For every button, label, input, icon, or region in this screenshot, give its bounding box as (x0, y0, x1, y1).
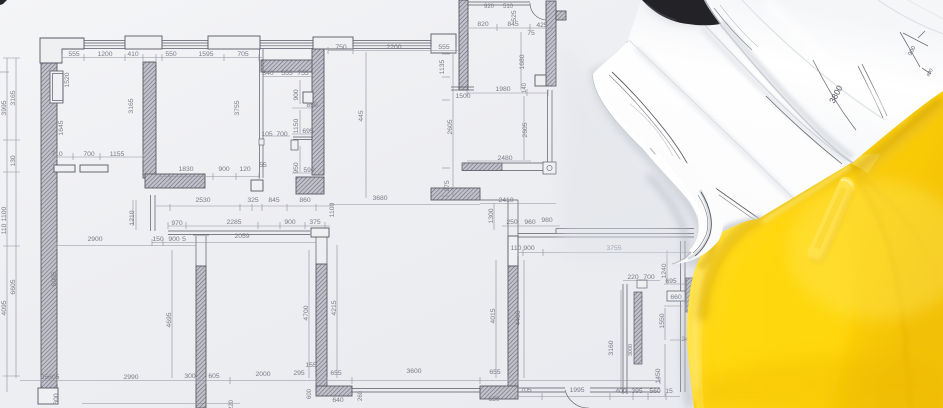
svg-text:700: 700 (83, 151, 95, 158)
svg-text:555: 555 (68, 51, 80, 58)
svg-text:1450: 1450 (655, 368, 662, 383)
svg-text:6005: 6005 (51, 271, 58, 286)
svg-text:900: 900 (218, 166, 230, 173)
svg-text:15: 15 (665, 388, 673, 395)
svg-text:3995: 3995 (1, 100, 8, 115)
svg-text:820: 820 (477, 21, 489, 28)
svg-text:560: 560 (649, 388, 661, 395)
svg-text:4695: 4695 (166, 312, 173, 327)
svg-text:425: 425 (536, 22, 548, 29)
svg-text:6605: 6605 (10, 279, 17, 294)
svg-text:900: 900 (293, 89, 300, 101)
svg-text:75: 75 (527, 30, 535, 37)
svg-text:375: 375 (309, 219, 321, 226)
svg-text:1155: 1155 (110, 151, 125, 158)
svg-text:1520: 1520 (64, 72, 71, 87)
svg-text:5: 5 (182, 236, 186, 243)
svg-text:250: 250 (506, 219, 518, 226)
svg-text:220: 220 (627, 274, 639, 281)
svg-text:640: 640 (332, 397, 344, 404)
svg-text:3165: 3165 (128, 98, 135, 113)
svg-text:900: 900 (523, 245, 535, 252)
svg-text:2990: 2990 (123, 374, 138, 381)
svg-text:1300: 1300 (488, 208, 495, 223)
svg-text:860: 860 (299, 197, 311, 204)
svg-text:2059: 2059 (234, 233, 249, 240)
svg-text:4400: 4400 (515, 310, 522, 325)
svg-text:120: 120 (239, 166, 251, 173)
svg-text:705: 705 (237, 51, 249, 58)
svg-text:1645: 1645 (58, 120, 65, 135)
svg-text:695: 695 (302, 128, 314, 135)
svg-text:655: 655 (330, 370, 342, 377)
svg-text:445: 445 (358, 110, 365, 122)
svg-text:220: 220 (229, 399, 235, 408)
svg-text:155: 155 (305, 362, 317, 369)
svg-text:630: 630 (488, 396, 500, 403)
svg-text:1135: 1135 (439, 59, 446, 74)
svg-text:550: 550 (165, 51, 177, 58)
svg-text:260: 260 (358, 390, 364, 401)
svg-text:4095: 4095 (1, 300, 8, 315)
svg-text:660: 660 (670, 294, 682, 301)
svg-text:845: 845 (268, 197, 280, 204)
svg-text:600: 600 (53, 393, 60, 405)
svg-text:2410: 2410 (498, 197, 513, 204)
svg-text:605: 605 (208, 373, 220, 380)
svg-text:600: 600 (307, 388, 313, 399)
svg-text:3755: 3755 (234, 100, 241, 115)
svg-text:275: 275 (444, 180, 451, 192)
svg-text:110: 110 (511, 245, 522, 252)
svg-text:4215: 4215 (331, 300, 338, 315)
svg-text:110: 110 (1, 223, 8, 234)
svg-text:705: 705 (520, 387, 532, 394)
svg-text:1100: 1100 (329, 202, 336, 217)
svg-text:900: 900 (168, 236, 180, 243)
svg-text:400: 400 (615, 388, 627, 395)
svg-text:3165: 3165 (10, 90, 17, 105)
svg-text:1100: 1100 (1, 206, 8, 221)
svg-text:1595: 1595 (198, 51, 213, 58)
svg-text:150: 150 (152, 236, 164, 243)
svg-text:700: 700 (643, 274, 655, 281)
svg-text:2900: 2900 (87, 236, 102, 243)
svg-text:4700: 4700 (303, 305, 310, 320)
svg-text:395: 395 (631, 388, 643, 395)
svg-text:2605: 2605 (522, 122, 529, 137)
svg-text:1150: 1150 (293, 118, 300, 133)
svg-text:700: 700 (276, 131, 288, 138)
svg-text:3600: 3600 (406, 368, 421, 375)
svg-text:3160: 3160 (608, 340, 615, 355)
svg-text:525: 525 (511, 10, 518, 22)
svg-text:710: 710 (51, 151, 63, 158)
svg-text:1500: 1500 (455, 93, 470, 100)
svg-text:140: 140 (522, 82, 528, 93)
svg-text:510: 510 (503, 4, 514, 10)
svg-text:2000: 2000 (255, 371, 270, 378)
svg-text:1200: 1200 (97, 51, 112, 58)
svg-text:960: 960 (524, 219, 536, 226)
svg-text:900: 900 (284, 219, 296, 226)
svg-text:300: 300 (184, 373, 196, 380)
svg-text:590: 590 (303, 167, 315, 174)
svg-text:2530: 2530 (195, 197, 210, 204)
svg-text:755: 755 (297, 70, 309, 77)
svg-text:850: 850 (306, 102, 318, 109)
svg-text:2605: 2605 (447, 119, 454, 134)
svg-text:555: 555 (281, 70, 293, 77)
svg-text:325: 325 (247, 197, 259, 204)
svg-text:1830: 1830 (178, 166, 193, 173)
svg-text:750: 750 (335, 44, 347, 51)
svg-text:555: 555 (438, 44, 450, 51)
svg-text:980: 980 (541, 217, 553, 224)
svg-text:1980: 1980 (495, 86, 510, 93)
svg-text:970: 970 (171, 220, 183, 227)
svg-text:920: 920 (484, 4, 495, 10)
svg-text:2285: 2285 (226, 219, 241, 226)
svg-text:3000: 3000 (628, 344, 634, 356)
svg-text:1240: 1240 (661, 263, 668, 278)
svg-text:105: 105 (261, 131, 273, 138)
svg-text:1680: 1680 (519, 54, 526, 69)
svg-text:55: 55 (259, 162, 267, 169)
svg-text:2480: 2480 (497, 155, 512, 162)
svg-text:655: 655 (489, 369, 501, 376)
svg-text:130: 130 (10, 155, 17, 167)
svg-text:2200: 2200 (386, 44, 401, 51)
svg-text:840: 840 (262, 70, 274, 77)
svg-text:295: 295 (293, 370, 305, 377)
svg-text:05605: 05605 (41, 374, 60, 381)
svg-text:4015: 4015 (490, 308, 497, 323)
svg-text:1210: 1210 (129, 210, 136, 225)
svg-text:3680: 3680 (372, 195, 387, 202)
svg-text:1995: 1995 (569, 387, 584, 394)
svg-text:410: 410 (127, 51, 139, 58)
svg-text:1550: 1550 (659, 313, 666, 328)
svg-text:695: 695 (665, 278, 677, 285)
svg-text:950: 950 (293, 162, 300, 174)
